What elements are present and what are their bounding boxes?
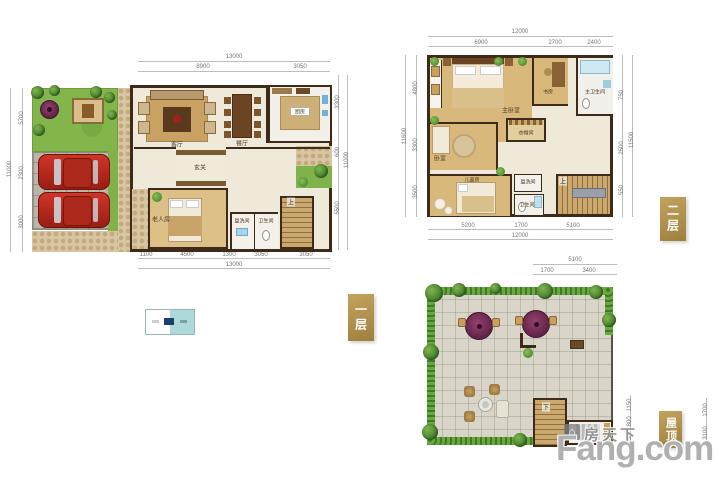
kitchen-sink — [322, 95, 328, 104]
bed-blanket — [462, 196, 494, 212]
tree — [589, 285, 603, 299]
tree — [49, 85, 60, 96]
armchair — [204, 102, 216, 115]
dim-label: 11600 — [402, 128, 408, 144]
dining-chair — [224, 131, 231, 138]
unit-position-legend — [145, 309, 195, 335]
dim-line — [428, 36, 613, 37]
toilet — [262, 230, 270, 241]
dim-label: 3300 — [413, 138, 419, 151]
nightstand — [443, 58, 451, 66]
tree — [31, 86, 44, 99]
dim-label: 12000 — [512, 233, 529, 239]
room-label-kitchen: 厨房 — [295, 109, 305, 116]
dining-chair — [254, 121, 261, 128]
dining-chair — [254, 109, 261, 116]
car-roof — [63, 158, 92, 188]
washbasin — [603, 80, 611, 88]
car-roof — [63, 196, 92, 226]
dim-label: 2700 — [548, 40, 561, 46]
dim-line — [533, 274, 617, 275]
wall — [520, 345, 536, 348]
tree — [490, 283, 501, 294]
dim-line — [138, 268, 330, 269]
tree — [104, 92, 115, 103]
room-label-foyer: 玄关 — [194, 163, 206, 172]
floor1-tag-label: 一层 — [353, 303, 370, 333]
room-label-washroom: 盥洗间 — [234, 218, 249, 225]
car-windshield — [54, 197, 61, 223]
dim-label: 3400 — [582, 268, 595, 274]
dining-table — [232, 94, 252, 138]
car-windshield — [54, 159, 61, 185]
roof-vent — [570, 340, 584, 349]
dim-label: 13000 — [226, 262, 243, 268]
tree — [422, 424, 438, 440]
bed — [432, 126, 450, 154]
dim-label: 8900 — [196, 64, 209, 70]
floorplan-sheet: 13000 8900 3050 11000 5700 2300 3000 330… — [0, 0, 720, 480]
room-label-kids: 儿童房 — [464, 177, 479, 184]
patio-umbrella — [40, 100, 59, 119]
wicker-chair — [464, 386, 475, 397]
dim-line — [533, 264, 617, 265]
dim-label: 3500 — [413, 185, 419, 198]
dim-label: 6900 — [474, 40, 487, 46]
plant — [430, 57, 439, 66]
kitchen-hood — [296, 88, 310, 94]
plant — [518, 57, 527, 66]
room-label-bathroom: 卫生间 — [258, 218, 273, 225]
dim-label: 1300 — [222, 252, 235, 258]
walkway — [32, 231, 118, 252]
tree — [423, 344, 439, 360]
dining-chair — [224, 97, 231, 104]
bush — [298, 177, 308, 187]
dim-label: 550 — [619, 185, 625, 195]
wall — [266, 87, 268, 143]
desk-chair — [544, 68, 552, 76]
car — [38, 154, 110, 190]
dining-chair — [224, 121, 231, 128]
tree — [602, 313, 616, 327]
stairs-down-label: 下 — [542, 403, 550, 412]
armchair — [138, 102, 150, 115]
wicker-chair — [489, 384, 500, 395]
wall — [134, 147, 176, 149]
dim-label: 1700 — [514, 223, 527, 229]
legend-marker — [164, 318, 174, 325]
balcony-chair — [431, 84, 440, 95]
table-decor — [173, 115, 181, 123]
legend-glyph — [180, 320, 187, 323]
sofa — [150, 90, 204, 100]
dim-label: 1700 — [703, 403, 709, 416]
dim-line — [428, 46, 613, 47]
desk — [552, 62, 565, 87]
plant — [496, 167, 505, 176]
tree — [452, 283, 466, 297]
patio-chair — [549, 316, 557, 325]
dim-line — [428, 239, 613, 240]
nightstand — [505, 58, 513, 66]
toy-rug — [444, 206, 453, 215]
floor2-tag-label: 二层 — [665, 204, 682, 234]
patio-umbrella — [522, 310, 550, 338]
car-rear-window — [93, 160, 98, 184]
hedge — [605, 287, 613, 335]
car — [38, 192, 110, 228]
tree — [425, 284, 443, 302]
patio — [296, 146, 332, 166]
watermark-en: Fang.com — [556, 429, 713, 469]
dim-label: 5700 — [19, 111, 25, 124]
dim-line — [138, 258, 330, 259]
room-label-study: 书房 — [543, 89, 553, 96]
foyer-cabinet — [176, 150, 226, 155]
pillow — [458, 184, 468, 192]
dim-label: 3050 — [254, 252, 267, 258]
tree — [513, 433, 527, 447]
plant — [430, 116, 439, 125]
round-rug — [452, 134, 476, 158]
pillow — [170, 200, 183, 208]
pillow — [455, 66, 476, 75]
room-label-master: 主卧室 — [502, 106, 520, 115]
dim-label: 4800 — [413, 81, 419, 94]
stairs-up-label: 上 — [287, 198, 295, 207]
dim-label: 12000 — [512, 29, 529, 35]
plant — [152, 192, 162, 202]
dining-chair — [254, 97, 261, 104]
foyer-cabinet — [176, 181, 226, 186]
dim-label: 1150 — [627, 399, 633, 412]
staircase — [280, 196, 314, 249]
dim-label: 750 — [619, 90, 625, 100]
washbasin — [236, 228, 248, 236]
pillow — [480, 66, 501, 75]
dim-label: 5500 — [335, 201, 341, 214]
hedge — [427, 287, 435, 445]
toilet — [582, 98, 590, 109]
bathtub — [580, 60, 610, 74]
tree — [33, 124, 45, 136]
patio-chair — [515, 316, 523, 325]
dim-label: 1700 — [540, 268, 553, 274]
bed-blanket — [168, 216, 202, 236]
car-rear-window — [93, 198, 98, 222]
pillow — [186, 200, 199, 208]
room-label-closet: 衣帽间 — [518, 130, 533, 137]
walkway — [132, 189, 148, 249]
floor1-tag: 一层 — [348, 294, 374, 341]
plant — [494, 57, 503, 66]
dim-line — [138, 61, 330, 62]
patio-umbrella — [465, 312, 493, 340]
dining-chair — [254, 131, 261, 138]
patio-chair — [492, 318, 500, 327]
dim-label: 5200 — [461, 223, 474, 229]
tree — [314, 164, 328, 178]
room-label-washroom2: 盥洗间 — [520, 179, 535, 186]
dim-label: 2500 — [619, 141, 625, 154]
dim-label: 1100 — [140, 252, 153, 258]
dim-label: 4500 — [180, 252, 193, 258]
stairs-up-label: 上 — [559, 177, 567, 186]
dim-label: 11000 — [344, 152, 350, 168]
room-label-elder: 老人房 — [152, 215, 170, 224]
tree — [90, 86, 102, 98]
lounge-chair — [496, 400, 509, 418]
wall — [226, 147, 330, 149]
armchair — [204, 121, 216, 134]
dim-label: 2400 — [587, 40, 600, 46]
dim-label: 3000 — [19, 215, 25, 228]
dim-line — [138, 71, 330, 72]
bed-blanket — [452, 88, 504, 108]
dim-label: 3050 — [293, 64, 306, 70]
kitchen-sink — [322, 110, 328, 116]
tree — [537, 283, 553, 299]
wardrobe — [509, 120, 543, 125]
legend-glyph — [152, 320, 159, 323]
room-label-bathroom2: 卫生间 — [519, 202, 534, 209]
dim-label: 13000 — [226, 54, 243, 60]
room-label-bedroom: 卧室 — [434, 154, 446, 163]
dining-chair — [224, 109, 231, 116]
dim-label: 3050 — [299, 252, 312, 258]
dim-label: 5100 — [566, 223, 579, 229]
bush — [523, 348, 533, 358]
room-label-master-bath: 主卫生间 — [585, 89, 605, 96]
tree — [107, 110, 117, 120]
table-top — [482, 401, 489, 408]
balcony-chair — [431, 66, 440, 77]
dim-label: 3300 — [335, 95, 341, 108]
shower — [534, 196, 542, 208]
stair-landing — [572, 188, 606, 198]
dim-label: 11500 — [629, 132, 635, 148]
wicker-chair — [464, 411, 475, 422]
dim-label: 2300 — [19, 166, 25, 179]
dim-label: 11000 — [7, 161, 13, 177]
patio-chair — [458, 318, 466, 327]
floor2-tag: 二层 — [660, 197, 686, 241]
kitchen-counter — [272, 88, 292, 94]
pavilion-table — [82, 104, 94, 118]
dim-label: 5100 — [568, 257, 581, 263]
armchair — [138, 121, 150, 134]
dim-label: 600 — [335, 147, 341, 157]
dim-line — [428, 229, 613, 230]
